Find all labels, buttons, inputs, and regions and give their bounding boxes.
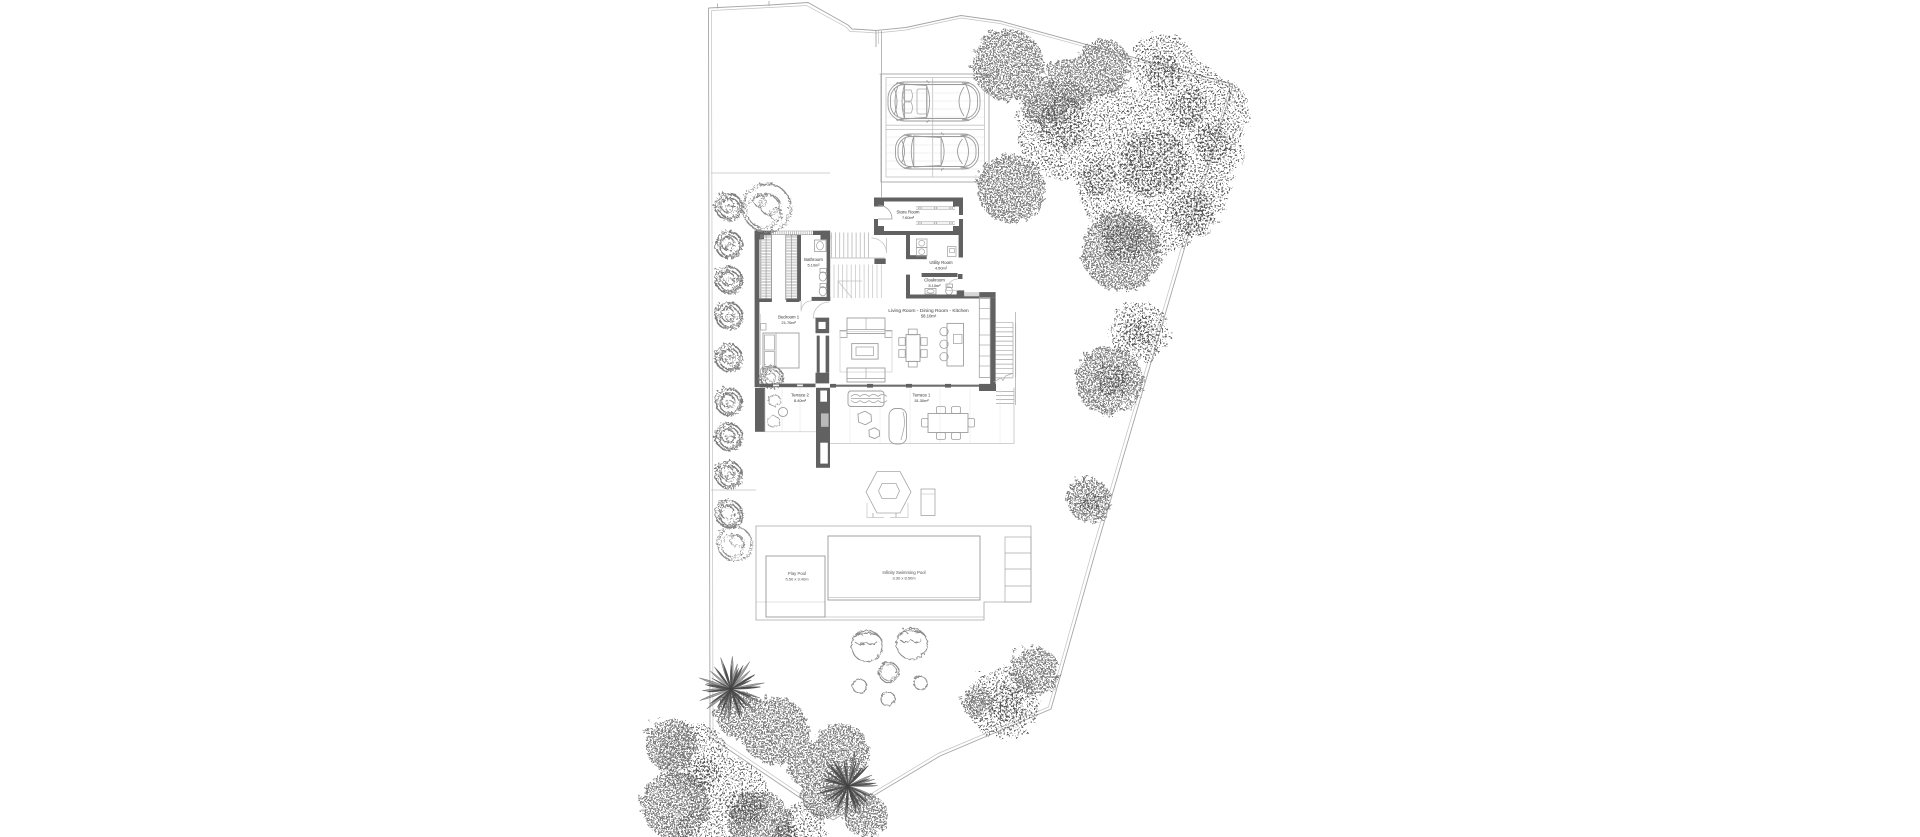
svg-text:Play Pool: Play Pool (788, 571, 806, 576)
svg-text:Bathroom: Bathroom (804, 257, 823, 262)
svg-text:Store Room: Store Room (897, 210, 920, 215)
svg-text:31.30m²: 31.30m² (914, 398, 929, 403)
svg-text:4.50m²: 4.50m² (935, 266, 948, 271)
svg-text:Infinity Swimming Pool: Infinity Swimming Pool (882, 570, 925, 575)
svg-text:Bedroom 1: Bedroom 1 (778, 315, 800, 320)
svg-text:Cloakroom: Cloakroom (924, 278, 945, 283)
svg-text:8.40m²: 8.40m² (794, 398, 807, 403)
svg-text:5.10m²: 5.10m² (928, 283, 941, 288)
svg-text:5.50 x 3.40m: 5.50 x 3.40m (785, 577, 809, 582)
svg-text:21.70m²: 21.70m² (782, 320, 797, 325)
svg-text:58.10m²: 58.10m² (921, 313, 937, 318)
svg-text:Terrace 1: Terrace 1 (913, 393, 932, 398)
svg-text:7.60m²: 7.60m² (902, 215, 915, 220)
svg-text:5.10m²: 5.10m² (807, 263, 820, 268)
svg-text:Utility Room: Utility Room (929, 260, 953, 265)
svg-text:3.30 x 8.50m: 3.30 x 8.50m (892, 576, 916, 581)
svg-text:Terrace 2: Terrace 2 (791, 393, 810, 398)
